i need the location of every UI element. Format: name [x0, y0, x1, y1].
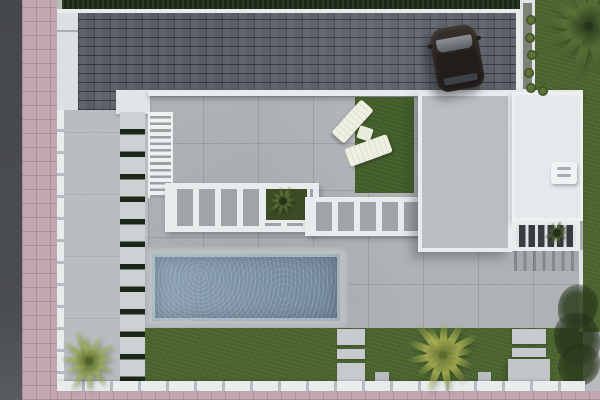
concrete-pad	[512, 329, 546, 344]
aerial-villa-render	[0, 0, 600, 400]
planter-shrub	[526, 83, 536, 93]
planter-strip	[520, 0, 535, 92]
palm-crown-center	[585, 22, 593, 30]
planter-shrub	[526, 15, 536, 25]
flat-roof-white	[512, 92, 583, 221]
roof-hatch	[551, 162, 577, 184]
bush-foliage	[558, 344, 600, 386]
planter-shrub	[524, 68, 534, 78]
concrete-block	[508, 359, 550, 383]
concrete-pad	[337, 329, 365, 345]
garden-bush	[554, 284, 600, 384]
stepping-stone-path	[120, 112, 145, 381]
hatch-handle	[557, 174, 571, 177]
palm-crown-center	[439, 351, 447, 359]
hatch-handle	[557, 167, 571, 170]
perimeter-wall-left	[57, 110, 64, 391]
concrete-pad	[512, 348, 546, 357]
planter-shrub	[527, 50, 537, 60]
palm-crown-center	[85, 357, 93, 365]
paver-driveway-extension	[78, 92, 118, 110]
planter-shrub	[525, 33, 535, 43]
swimming-pool	[152, 254, 340, 321]
gate-line	[57, 30, 78, 32]
car-mirror	[427, 44, 433, 49]
palm-crown-center	[553, 229, 561, 237]
flat-roof-gray	[418, 92, 512, 252]
concrete-pad	[337, 363, 365, 382]
entry-walkway	[57, 13, 78, 110]
planter-shrub	[538, 86, 548, 96]
road	[0, 0, 22, 400]
beam-pergola-right	[305, 197, 428, 236]
sidewalk-bottom	[57, 391, 600, 400]
perimeter-wall-bottom	[57, 381, 585, 391]
concrete-pad	[337, 349, 365, 359]
sidewalk-left	[22, 0, 57, 400]
pergola-shadow	[514, 251, 578, 271]
palm-crown-center	[279, 197, 287, 205]
concrete-pad-small	[375, 372, 389, 381]
concrete-pad-small	[478, 372, 491, 381]
boundary-hedge	[62, 0, 520, 9]
stair-landing	[116, 90, 150, 114]
